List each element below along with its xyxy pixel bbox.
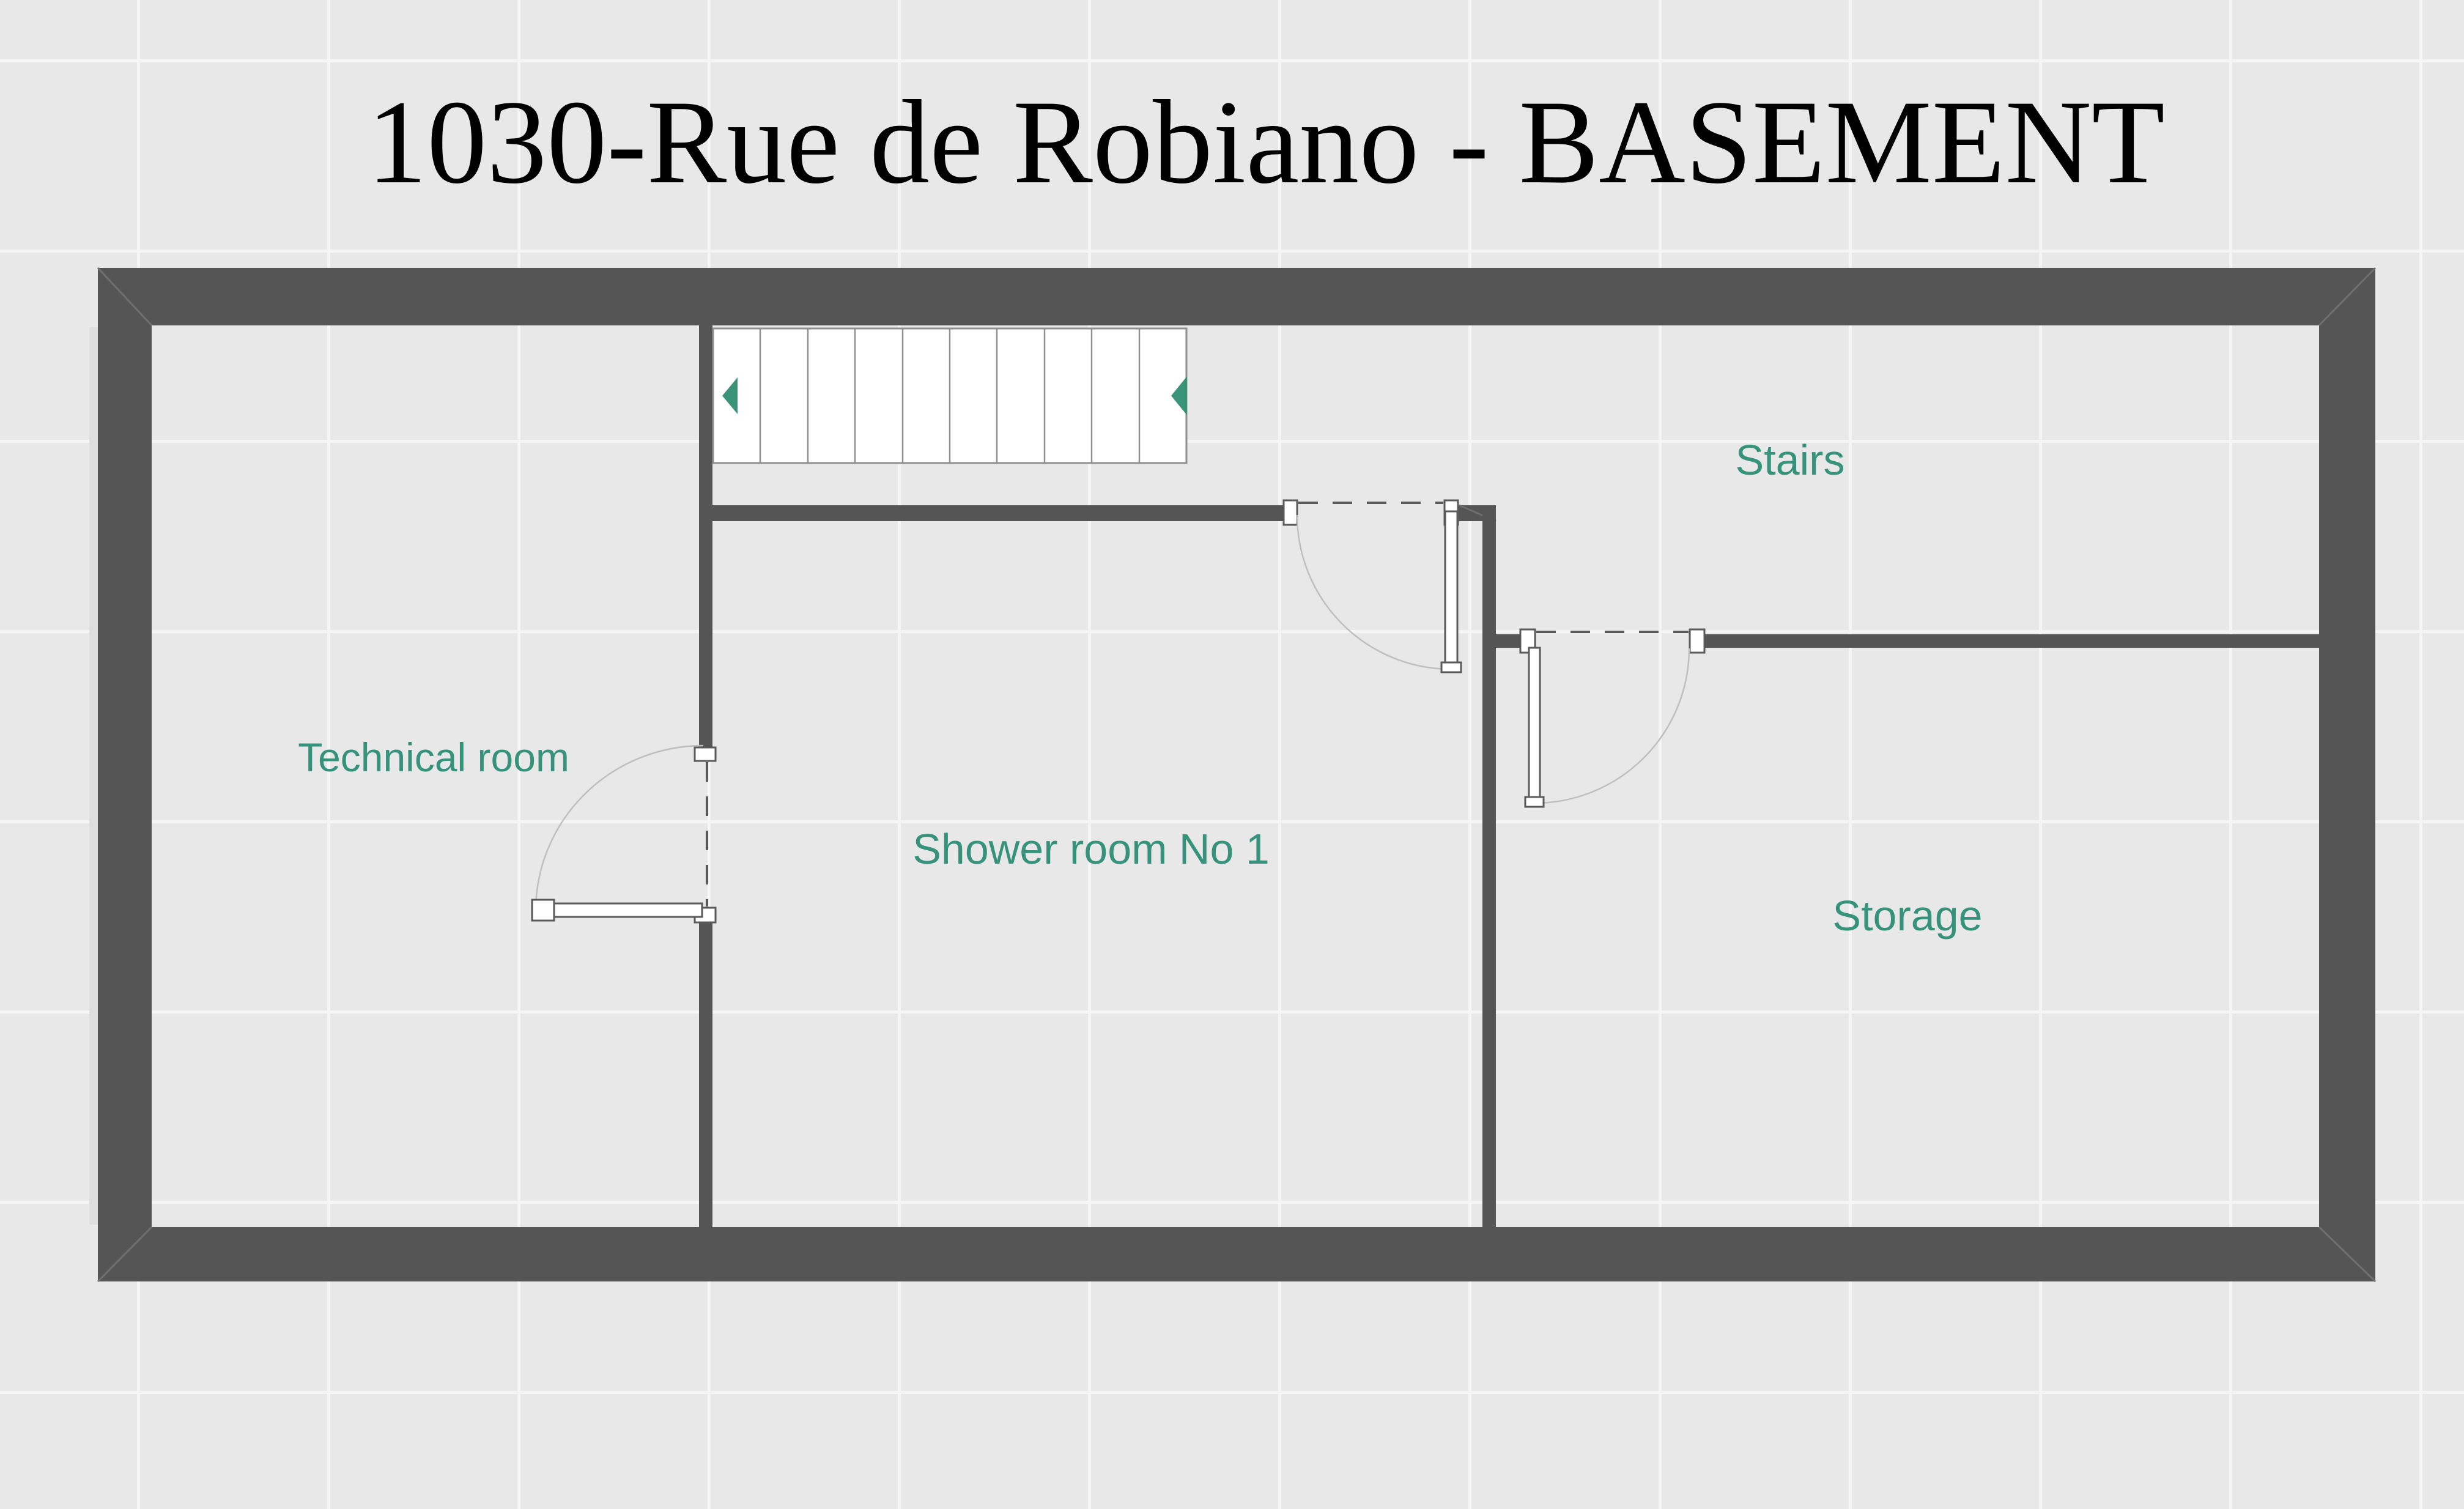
interior-wall-stairs-left	[699, 505, 1285, 521]
room-label-shower: Shower room No 1	[912, 825, 1270, 873]
staircase	[713, 328, 1187, 463]
door-leaf-cap	[1441, 662, 1461, 672]
interior-wall-technical-upper	[699, 325, 712, 747]
floor-plan-screen: 1030-Rue de Robiano - BASEMENT	[0, 0, 2464, 1509]
room-label-stairs: Stairs	[1736, 436, 1845, 484]
door-leaf	[1445, 511, 1457, 665]
door-leaf	[1529, 648, 1540, 799]
room-label-storage: Storage	[1832, 892, 1982, 940]
page-title: 1030-Rue de Robiano - BASEMENT	[367, 76, 2165, 209]
interior-wall-shower-right	[1482, 505, 1496, 1227]
interior-wall-technical-lower	[699, 922, 712, 1227]
door-jamb	[695, 747, 716, 761]
interior-wall-storage-stub	[1496, 634, 1522, 648]
door-leaf-cap	[532, 900, 554, 921]
floor-plan-canvas: 1030-Rue de Robiano - BASEMENT	[0, 0, 2464, 1509]
door-jamb	[1690, 629, 1704, 653]
door-leaf	[536, 903, 702, 917]
door-jamb	[1284, 500, 1297, 525]
wall-shadow	[89, 327, 98, 1225]
interior-wall-storage-right	[1704, 634, 2319, 648]
room-label-technical: Technical room	[298, 735, 569, 780]
door-leaf-cap	[1525, 797, 1544, 807]
